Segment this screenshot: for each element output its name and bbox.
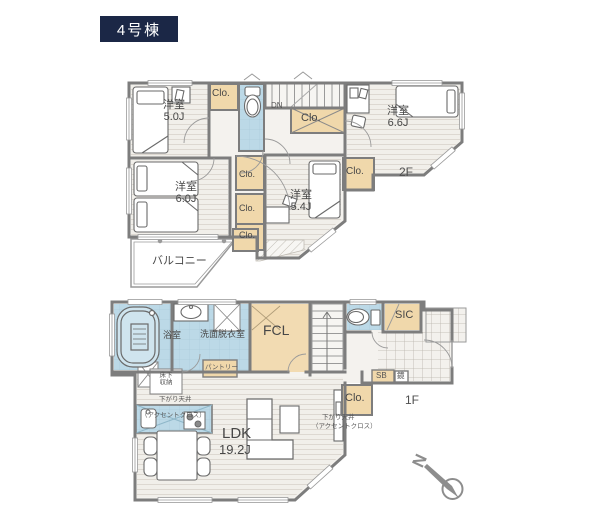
bedroom-50-name: 洋室	[150, 99, 198, 111]
washing-machine-space	[214, 304, 240, 331]
toilet-icon-2f	[245, 87, 261, 117]
room-label-bedroom-66: 洋室 6.6J	[372, 105, 424, 130]
compass-icon	[424, 464, 463, 499]
roof-vent-marks	[244, 72, 312, 80]
building-title-badge: 4号棟	[100, 16, 178, 42]
closet-label-right-2f: Clo.	[346, 166, 364, 177]
underfloor-line2: 収納	[153, 379, 179, 386]
floor-2f-label: 2F	[399, 166, 413, 179]
bath-label: 浴室	[163, 330, 181, 340]
mirror-label: 鏡	[397, 372, 405, 380]
ldk-size-label: 19.2J	[219, 443, 251, 458]
bedroom-54-name: 洋室	[277, 189, 325, 201]
floorplan-graphics	[0, 0, 600, 525]
bedroom-66-size: 6.6J	[372, 117, 424, 129]
floor-1f-label: 1F	[405, 394, 419, 407]
accent-cloth-label-kitchen: （アクセントクロス）	[141, 412, 206, 419]
stairs-down-label: DN	[271, 102, 283, 111]
closet-label-1f: Clo.	[345, 392, 365, 404]
room-label-bedroom-54: 洋室 5.4J	[277, 189, 325, 214]
building-title: 4号棟	[117, 19, 161, 40]
pantry-label: パントリー	[205, 364, 238, 371]
room-label-bedroom-50: 洋室 5.0J	[150, 99, 198, 124]
side-table-icon	[280, 406, 299, 433]
bedroom-50-size: 5.0J	[150, 111, 198, 123]
floorplan-page: 4号棟 洋室 5.0J Clo. DN Clo. 洋室 6.6J 2F 洋室 6…	[0, 0, 600, 525]
shoe-box-label: SB	[376, 372, 387, 381]
shoe-in-closet-label: SIC	[395, 309, 413, 321]
bedroom-60-size: 6.0J	[161, 193, 211, 205]
toilet-icon-1f	[347, 309, 380, 325]
balcony-label: バルコニー	[152, 255, 207, 267]
closet-label-under-stairs: Clo.	[301, 112, 321, 124]
washbasin-icon	[174, 304, 208, 321]
room-label-bedroom-60: 洋室 6.0J	[161, 181, 211, 206]
bathtub-icon	[117, 307, 159, 367]
stairs-1f	[312, 304, 343, 373]
underfloor-storage-label: 床下 収納	[153, 372, 179, 387]
accent-cloth-label-tv: （アクセントクロス）	[312, 423, 377, 430]
washroom-label: 洗面脱衣室	[200, 329, 245, 339]
porch-tiles	[426, 308, 466, 342]
lowered-ceiling-label-tv: 下がり天井	[322, 414, 355, 421]
closet-label-top-2f: Clo.	[212, 88, 230, 99]
closet-label-stack-1: Clo.	[239, 169, 255, 179]
family-closet-label: FCL	[263, 323, 289, 339]
lowered-ceiling-label-kitchen: 下がり天井	[159, 396, 192, 403]
bedroom-66-name: 洋室	[372, 105, 424, 117]
closet-label-stack-3: Clo.	[239, 230, 255, 240]
ldk-label: LDK	[222, 426, 251, 443]
bedroom-54-size: 5.4J	[277, 201, 325, 213]
bedroom-60-name: 洋室	[161, 181, 211, 193]
closet-label-stack-2: Clo.	[239, 203, 255, 213]
